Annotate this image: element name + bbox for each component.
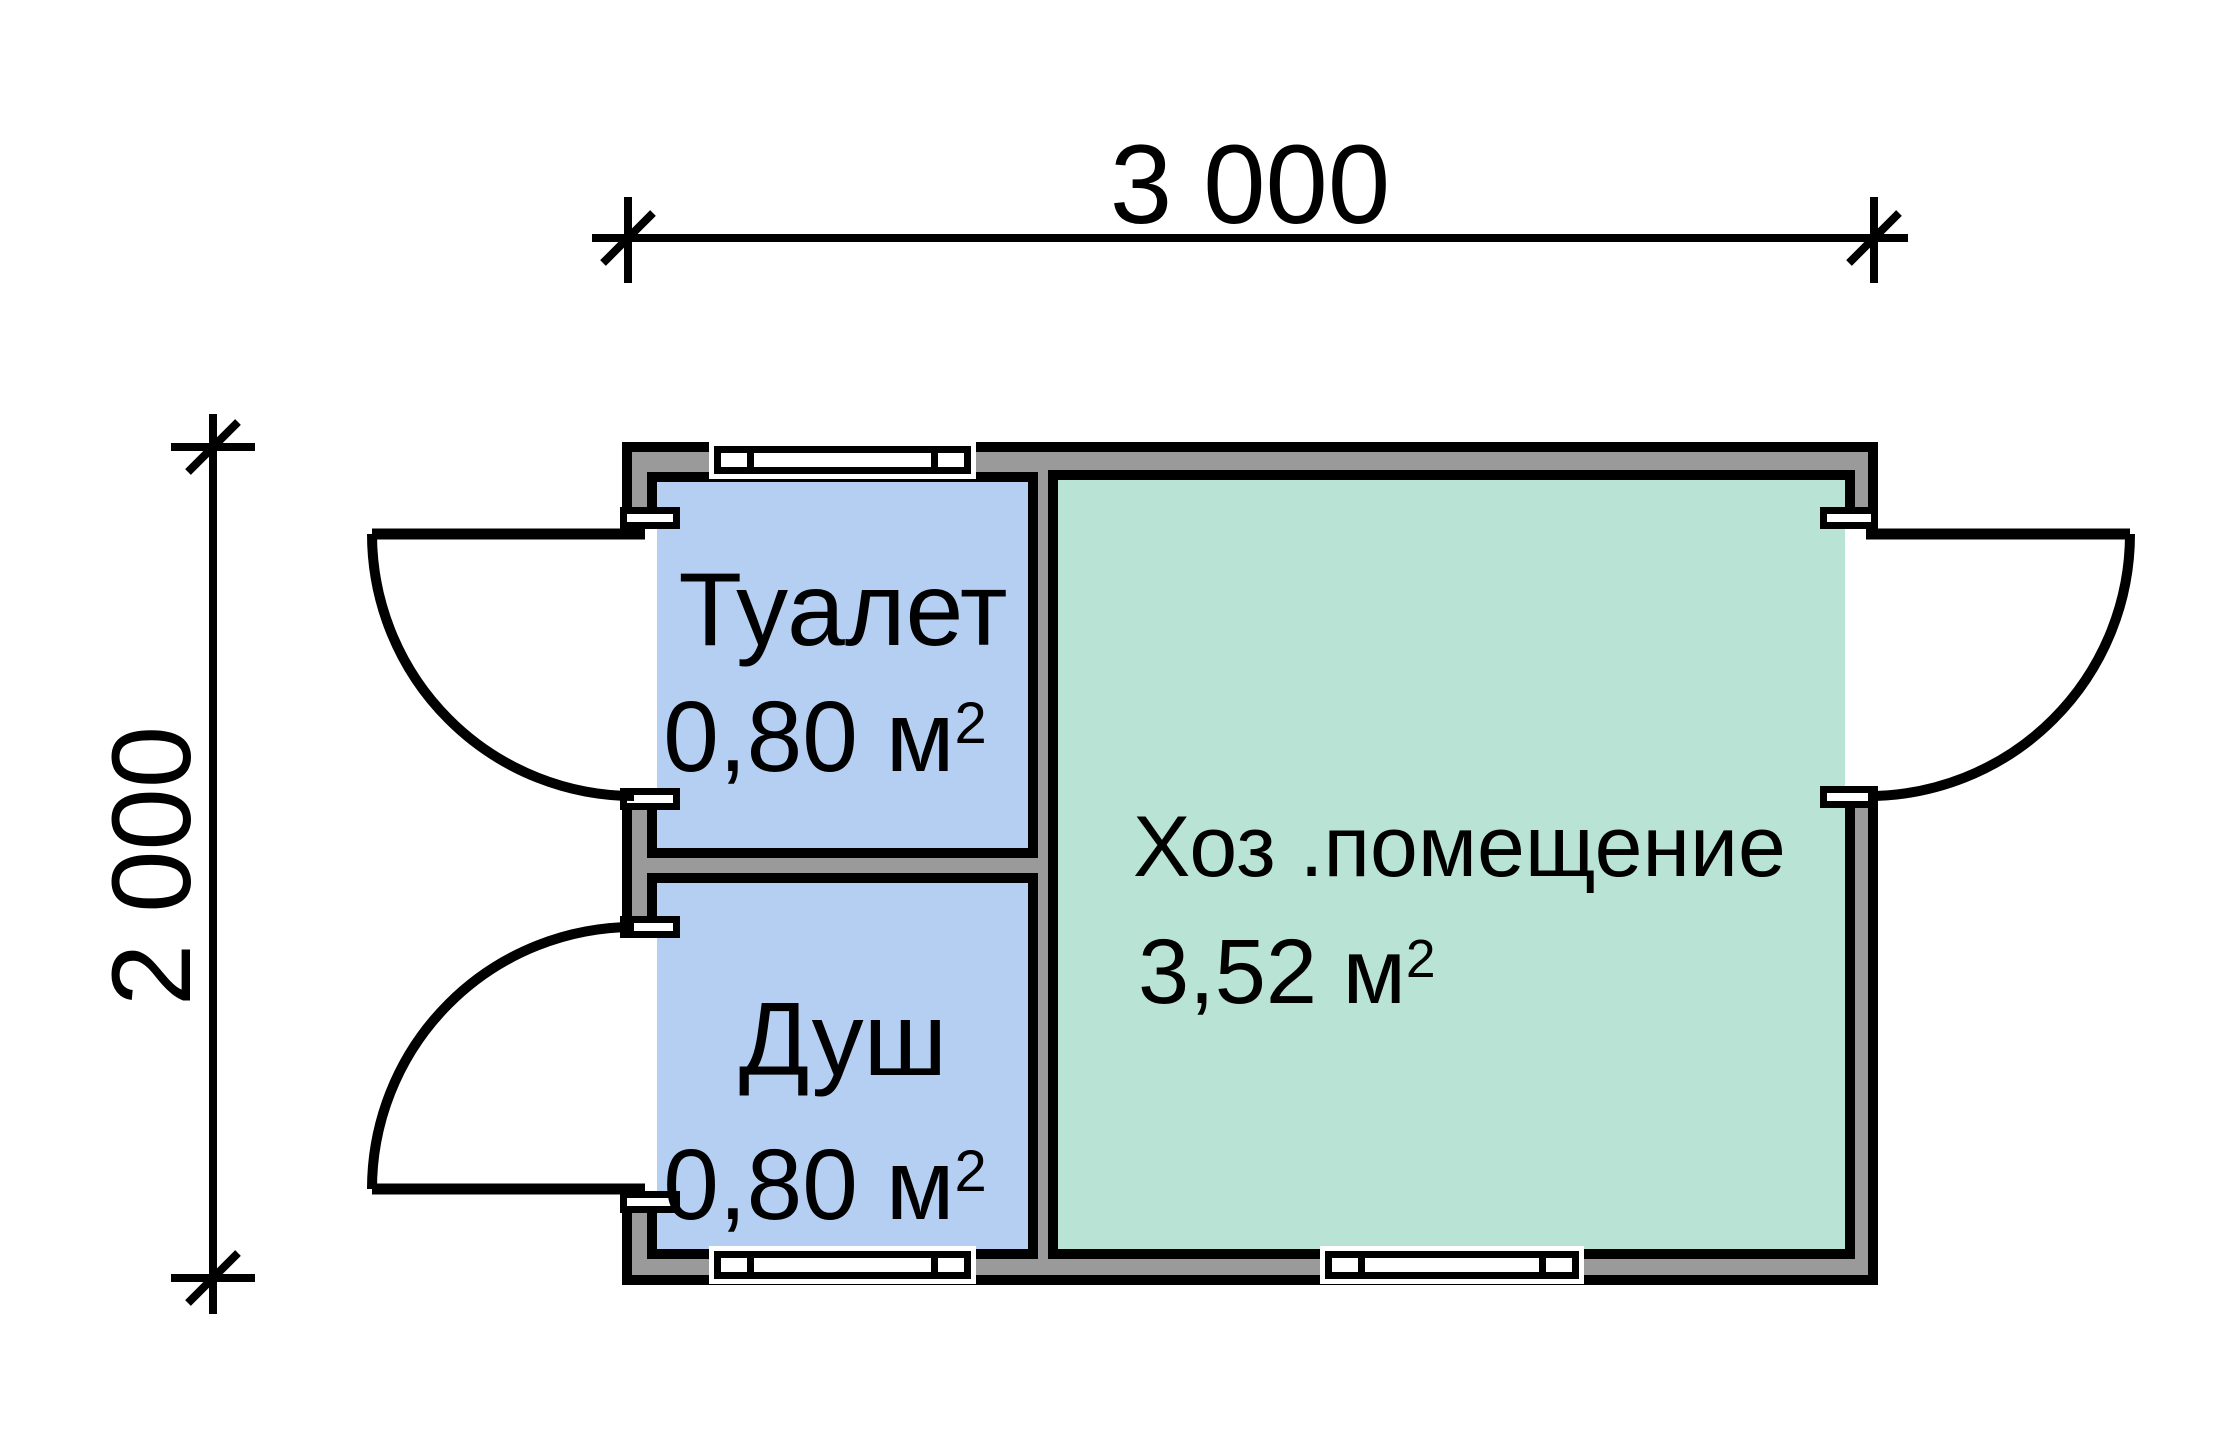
door-opening-utility bbox=[1845, 529, 1888, 786]
dimension-height-label: 2 000 bbox=[96, 726, 208, 1006]
room-utility-area: 3,52 м2 bbox=[1138, 926, 1436, 1018]
door-jamb bbox=[620, 916, 680, 938]
window-pane bbox=[1332, 1258, 1365, 1272]
dimension-tick-slash bbox=[188, 1253, 238, 1303]
door-swing-arc-shower bbox=[372, 927, 634, 1189]
room-shower-area: 0,80 м2 bbox=[663, 1135, 986, 1235]
area-value: 3,52 м bbox=[1138, 921, 1406, 1023]
window-bottom-wall-utility bbox=[1325, 1251, 1579, 1279]
door-swing-arc-utility bbox=[1868, 534, 2130, 796]
window-pane bbox=[721, 1258, 754, 1272]
room-toilet-area: 0,80 м2 bbox=[663, 687, 986, 787]
room-utility-name: Хоз .помещение bbox=[1133, 804, 1786, 890]
area-superscript: 2 bbox=[954, 691, 986, 756]
area-value: 0,80 м bbox=[663, 681, 954, 793]
door-jamb bbox=[620, 507, 680, 529]
room-toilet-name: Туалет bbox=[678, 558, 1007, 662]
area-superscript: 2 bbox=[954, 1139, 986, 1204]
area-superscript: 2 bbox=[1406, 930, 1436, 989]
door-opening-shower bbox=[618, 938, 657, 1192]
window-top-wall bbox=[714, 446, 971, 474]
area-value: 0,80 м bbox=[663, 1129, 954, 1241]
window-pane bbox=[931, 1258, 964, 1272]
door-jamb bbox=[1820, 786, 1878, 808]
door-opening-toilet bbox=[618, 529, 657, 789]
dimension-tick-slash bbox=[188, 422, 238, 472]
dimension-width-label: 3 000 bbox=[1110, 129, 1390, 241]
window-pane bbox=[1539, 1258, 1572, 1272]
window-pane bbox=[931, 453, 964, 467]
floor-plan: 3 000 2 000 Туалет 0,80 м2 Душ 0,80 м2 Х… bbox=[0, 0, 2225, 1432]
dimension-tick-slash bbox=[1849, 213, 1899, 263]
room-shower-name: Душ bbox=[739, 988, 947, 1092]
door-jamb bbox=[1820, 507, 1878, 529]
dimension-tick-slash bbox=[603, 213, 653, 263]
door-swing-arc-toilet bbox=[372, 534, 634, 796]
window-bottom-wall-shower bbox=[714, 1251, 971, 1279]
window-pane bbox=[721, 453, 754, 467]
